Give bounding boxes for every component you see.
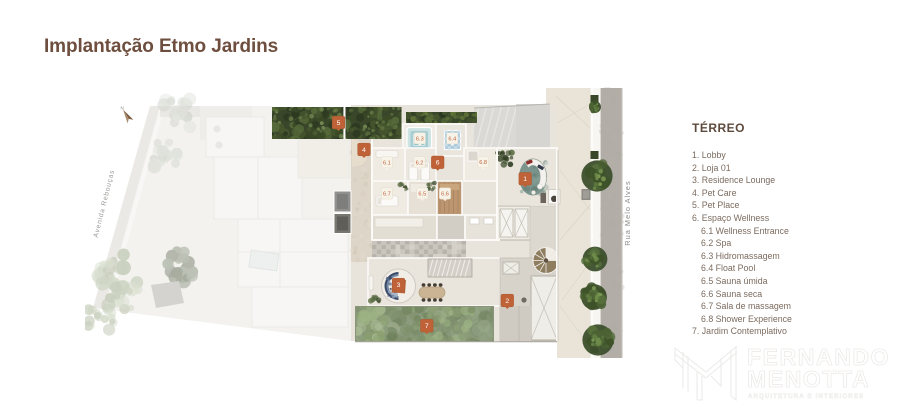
svg-text:4: 4 xyxy=(362,147,366,154)
svg-text:5: 5 xyxy=(337,120,341,127)
svg-text:6.6: 6.6 xyxy=(441,192,449,198)
svg-text:6.3: 6.3 xyxy=(416,136,424,142)
svg-text:6.4: 6.4 xyxy=(448,136,456,142)
svg-text:6.2: 6.2 xyxy=(416,160,424,166)
svg-text:7: 7 xyxy=(425,323,429,330)
svg-text:N: N xyxy=(121,106,124,111)
svg-text:Avenida Rebouças: Avenida Rebouças xyxy=(93,169,117,238)
svg-text:6.5: 6.5 xyxy=(418,192,426,198)
svg-text:6.7: 6.7 xyxy=(383,192,391,198)
svg-text:3: 3 xyxy=(397,282,401,289)
svg-text:Rua Melo Alves: Rua Melo Alves xyxy=(623,180,632,245)
svg-text:6.8: 6.8 xyxy=(479,160,487,166)
svg-text:2: 2 xyxy=(505,298,509,305)
svg-text:6: 6 xyxy=(436,160,440,167)
svg-text:1: 1 xyxy=(523,176,527,183)
svg-text:6.1: 6.1 xyxy=(383,160,391,166)
